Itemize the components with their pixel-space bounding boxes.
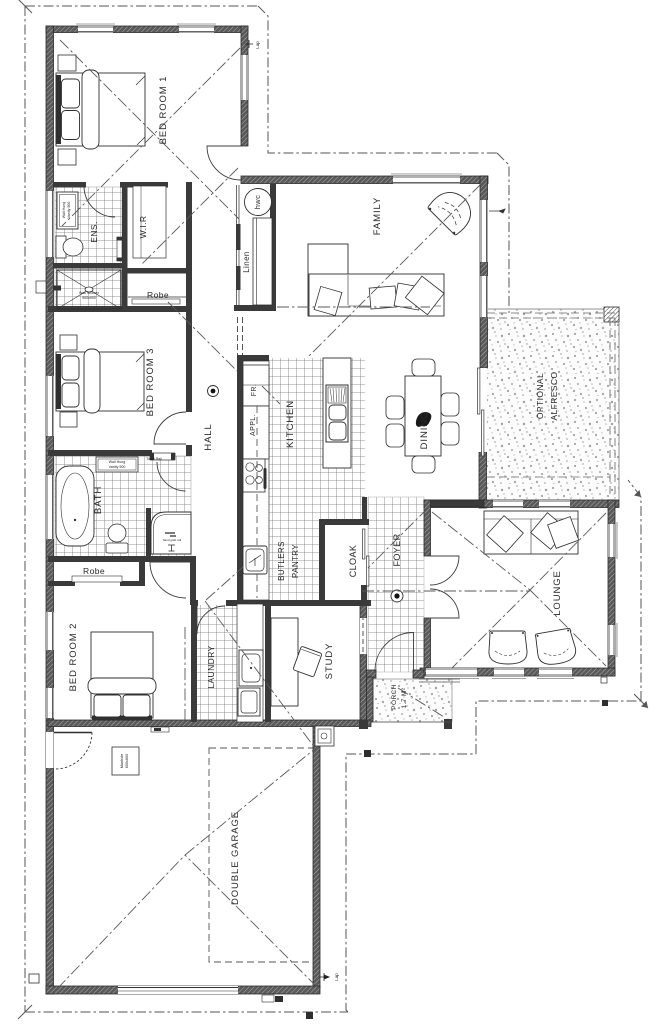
svg-text:BUTLERS: BUTLERS (277, 541, 286, 581)
svg-text:Lap: Lap (334, 973, 339, 981)
svg-text:LOUNGE: LOUNGE (552, 570, 563, 616)
svg-text:HALL: HALL (203, 423, 214, 450)
svg-text:CLOAK: CLOAK (348, 545, 358, 578)
svg-text:STUDY: STUDY (324, 643, 335, 680)
svg-text:FAMILY: FAMILY (372, 197, 383, 235)
svg-text:BATH: BATH (93, 486, 104, 514)
svg-text:DINING: DINING (419, 411, 430, 450)
svg-text:Robe: Robe (147, 290, 169, 300)
svg-text:Robe: Robe (83, 566, 105, 576)
svg-text:PANTRY: PANTRY (291, 544, 300, 578)
svg-text:APPL.: APPL. (250, 414, 257, 436)
svg-text:Towel Rail: Towel Rail (146, 457, 162, 461)
svg-text:FR.: FR. (251, 384, 258, 396)
svg-text:Linen: Linen (242, 251, 251, 273)
svg-text:BED ROOM 3: BED ROOM 3 (145, 348, 156, 417)
svg-text:Vanity 900: Vanity 900 (109, 465, 126, 469)
svg-text:Lap: Lap (255, 41, 260, 49)
svg-text:BED ROOM 1: BED ROOM 1 (158, 76, 169, 145)
svg-text:600x600: 600x600 (125, 754, 129, 769)
svg-text:Wall Hung: Wall Hung (62, 202, 66, 218)
svg-text:Vanity 900: Vanity 900 (67, 202, 71, 219)
svg-text:Manhole: Manhole (120, 754, 124, 769)
svg-text:ALFRESCO: ALFRESCO (549, 371, 559, 420)
svg-text:Wall Hung: Wall Hung (109, 460, 125, 464)
svg-text:W.I.R: W.I.R (138, 216, 148, 239)
svg-text:ENS.: ENS. (89, 221, 99, 242)
svg-text:1.7 M²: 1.7 M² (401, 687, 408, 708)
svg-text:Wall Shower: Wall Shower (79, 291, 100, 295)
svg-text:hwc: hwc (253, 195, 262, 210)
svg-text:BED ROOM 2: BED ROOM 2 (68, 623, 79, 692)
svg-text:hand grab rail: hand grab rail (163, 538, 182, 542)
svg-text:DOUBLE GARAGE: DOUBLE GARAGE (230, 811, 241, 905)
svg-text:FOYER: FOYER (392, 533, 402, 566)
svg-text:LAUNDRY: LAUNDRY (206, 645, 216, 688)
svg-text:OPTIONAL: OPTIONAL (535, 373, 545, 419)
svg-text:PORCH: PORCH (391, 684, 398, 709)
svg-text:KITCHEN: KITCHEN (285, 400, 296, 448)
svg-text:900x900: 900x900 (82, 296, 96, 300)
